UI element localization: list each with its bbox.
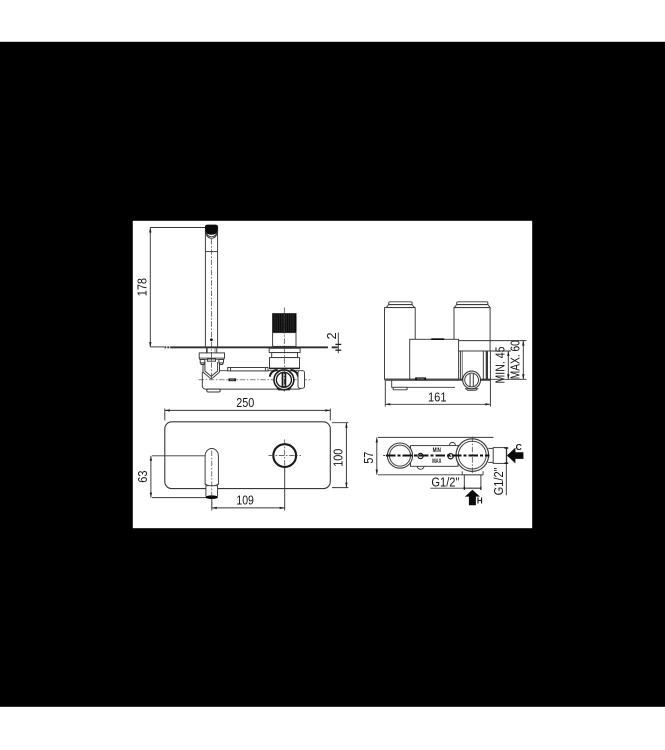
svg-text:G1/2": G1/2" [431,476,459,490]
svg-text:109: 109 [236,494,254,508]
svg-text:100: 100 [332,449,346,467]
svg-text:161: 161 [428,390,447,404]
svg-text:G1/2": G1/2" [492,467,506,495]
svg-text:MIN. 45: MIN. 45 [493,346,507,383]
svg-text:178: 178 [136,278,150,296]
svg-text:MIN: MIN [433,448,441,454]
svg-text:57: 57 [362,452,376,464]
svg-text:MAX. 60: MAX. 60 [509,340,523,379]
svg-text:C: C [516,442,522,452]
svg-text:H: H [477,497,483,506]
svg-text:63: 63 [136,470,150,482]
svg-text:250: 250 [236,396,254,410]
svg-text:2: 2 [325,332,339,339]
svg-text:MAX: MAX [432,459,441,465]
